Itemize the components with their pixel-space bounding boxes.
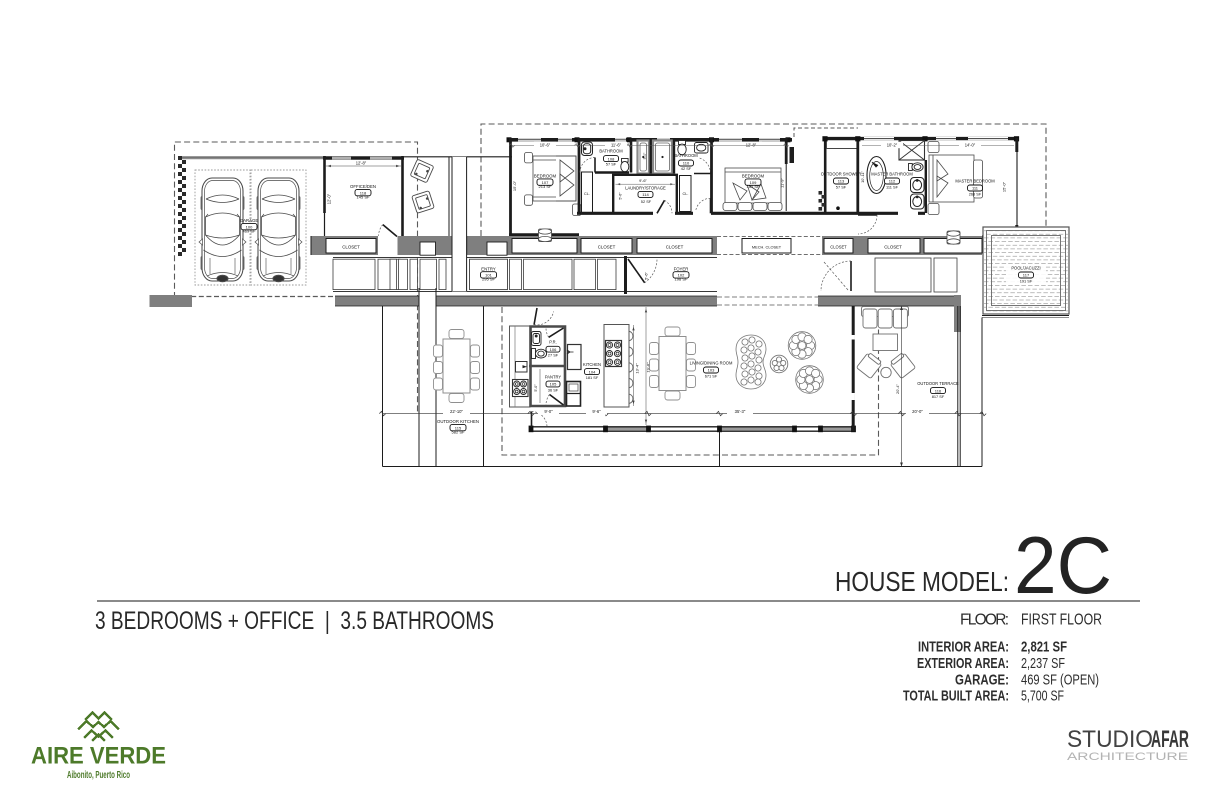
svg-text:ARCHITECTURE: ARCHITECTURE: [1067, 751, 1188, 763]
svg-text:OUTDOOR SHOWER: OUTDOOR SHOWER: [821, 171, 862, 176]
svg-text:469 SF (OPEN): 469 SF (OPEN): [1021, 672, 1099, 689]
svg-text:817 SF: 817 SF: [932, 394, 945, 399]
svg-text:181 SF: 181 SF: [586, 375, 599, 380]
svg-text:GARAGE: GARAGE: [240, 218, 259, 223]
svg-text:20'-0": 20'-0": [912, 409, 923, 414]
svg-text:5'-6": 5'-6": [619, 192, 623, 200]
svg-text:469 SF: 469 SF: [243, 229, 256, 234]
svg-text:CLOSET: CLOSET: [598, 244, 616, 249]
svg-text:LAUNDRY/STORAGE: LAUNDRY/STORAGE: [625, 186, 666, 191]
svg-text:145 SF: 145 SF: [357, 195, 370, 200]
svg-text:CLOSET: CLOSET: [342, 244, 360, 249]
svg-text:103: 103: [708, 368, 715, 373]
svg-text:10'-2": 10'-2": [887, 143, 898, 148]
svg-text:12'-8": 12'-8": [746, 143, 757, 148]
svg-text:671 SF: 671 SF: [705, 373, 718, 378]
svg-text:BEDROOM: BEDROOM: [534, 174, 557, 179]
svg-text:15'-0": 15'-0": [1002, 181, 1007, 192]
svg-text:14'-0": 14'-0": [965, 143, 976, 148]
svg-text:582 SF: 582 SF: [452, 430, 465, 435]
svg-text:CL.: CL.: [683, 192, 689, 196]
svg-text:2,821 SF: 2,821 SF: [1021, 639, 1067, 656]
svg-text:27 SF: 27 SF: [548, 353, 559, 358]
svg-text:Aibonito, Puerto Rico: Aibonito, Puerto Rico: [67, 770, 130, 781]
svg-text:295 SF: 295 SF: [482, 277, 495, 282]
svg-text:CL.: CL.: [584, 192, 590, 196]
svg-text:LIVING/DINING ROOM: LIVING/DINING ROOM: [690, 360, 733, 365]
svg-text:CLOSET: CLOSET: [830, 244, 847, 249]
svg-text:13'-4": 13'-4": [635, 363, 640, 374]
svg-text:10'-6": 10'-6": [540, 143, 551, 148]
svg-text:117: 117: [1023, 273, 1030, 278]
svg-text:111: 111: [972, 186, 979, 191]
svg-text:36 SF: 36 SF: [548, 387, 559, 392]
svg-text:GARAGE:: GARAGE:: [955, 672, 1009, 689]
svg-text:22'-10": 22'-10": [450, 409, 464, 414]
svg-text:35'-3": 35'-3": [735, 409, 746, 414]
svg-text:FOYER: FOYER: [674, 267, 689, 272]
svg-text:OUTDOOR KITCHEN: OUTDOOR KITCHEN: [437, 419, 479, 424]
svg-text:104: 104: [589, 369, 596, 374]
svg-text:11'-9": 11'-9": [780, 177, 785, 187]
svg-text:FIRST FLOOR: FIRST FLOOR: [1021, 612, 1102, 629]
svg-text:15'-0": 15'-0": [512, 180, 517, 191]
svg-text:EXTERIOR AREA:: EXTERIOR AREA:: [917, 655, 1009, 672]
svg-text:KITCHEN: KITCHEN: [583, 362, 601, 367]
svg-text:OUTDOOR TERRACE: OUTDOOR TERRACE: [917, 381, 959, 386]
svg-text:BATHROOM: BATHROOM: [599, 149, 623, 154]
svg-text:3 BEDROOMS + OFFICE | 3.5 BA: 3 BEDROOMS + OFFICE | 3.5 BATHROOMS: [95, 607, 494, 635]
svg-text:105: 105: [550, 382, 557, 387]
svg-text:111 SF: 111 SF: [886, 184, 899, 189]
svg-text:106: 106: [550, 347, 557, 352]
svg-text:213 SF: 213 SF: [539, 184, 552, 189]
svg-text:2,237 SF: 2,237 SF: [1021, 655, 1065, 672]
svg-text:P.R.: P.R.: [549, 340, 556, 345]
svg-text:BATHROOM: BATHROOM: [674, 153, 698, 158]
svg-text:MASTER BEDROOM: MASTER BEDROOM: [955, 178, 995, 183]
svg-text:MASTER BATHROOM: MASTER BATHROOM: [871, 171, 913, 176]
svg-text:12'-8": 12'-8": [356, 160, 367, 165]
svg-text:9'-6": 9'-6": [592, 409, 601, 414]
svg-text:191 SF: 191 SF: [1020, 278, 1033, 283]
svg-text:TOTAL BUILT AREA:: TOTAL BUILT AREA:: [903, 688, 1009, 705]
svg-text:20'-4": 20'-4": [895, 383, 900, 394]
svg-text:AFAR: AFAR: [1151, 726, 1189, 753]
svg-text:9'-0": 9'-0": [544, 409, 553, 414]
svg-text:INTERIOR AREA:: INTERIOR AREA:: [918, 639, 1009, 656]
svg-text:112: 112: [889, 179, 896, 184]
svg-text:5'-6": 5'-6": [644, 272, 649, 280]
svg-text:57 SF: 57 SF: [836, 184, 847, 189]
svg-text:57 SF: 57 SF: [606, 161, 617, 166]
svg-text:10'-11": 10'-11": [860, 170, 865, 182]
svg-text:POOL/JACUZZI: POOL/JACUZZI: [1011, 265, 1040, 270]
svg-text:198 SF: 198 SF: [675, 277, 688, 282]
svg-text:AIRE VERDE: AIRE VERDE: [31, 743, 166, 770]
svg-text:CLOSET: CLOSET: [666, 244, 684, 249]
svg-text:CLOSET: CLOSET: [884, 244, 902, 249]
svg-text:PANTRY: PANTRY: [545, 374, 561, 379]
svg-text:OFFICE/DEN: OFFICE/DEN: [350, 184, 376, 189]
svg-text:STUDIO: STUDIO: [1067, 726, 1153, 753]
svg-text:2C: 2C: [1014, 521, 1112, 611]
svg-text:5'-0": 5'-0": [534, 384, 538, 392]
svg-text:ENTRY: ENTRY: [481, 267, 496, 272]
svg-text:12'-0": 12'-0": [326, 193, 331, 204]
svg-text:42 SF: 42 SF: [681, 166, 692, 171]
svg-text:52 SF: 52 SF: [641, 199, 652, 204]
svg-text:114: 114: [642, 192, 649, 197]
svg-text:116: 116: [935, 388, 942, 393]
svg-text:MECH. CLOSET: MECH. CLOSET: [752, 244, 782, 249]
svg-text:HOUSE MODEL:: HOUSE MODEL:: [835, 566, 1009, 597]
svg-text:9'-6": 9'-6": [639, 178, 647, 183]
svg-text:151 SF: 151 SF: [747, 184, 760, 189]
svg-text:FLOOR:: FLOOR:: [960, 612, 1009, 629]
svg-text:BEDROOM: BEDROOM: [742, 174, 765, 179]
svg-text:5,700 SF: 5,700 SF: [1021, 688, 1064, 705]
svg-text:113: 113: [838, 179, 845, 184]
svg-text:11'-6": 11'-6": [611, 143, 622, 148]
svg-text:5'-0": 5'-0": [643, 152, 647, 160]
svg-text:268 SF: 268 SF: [969, 191, 982, 196]
